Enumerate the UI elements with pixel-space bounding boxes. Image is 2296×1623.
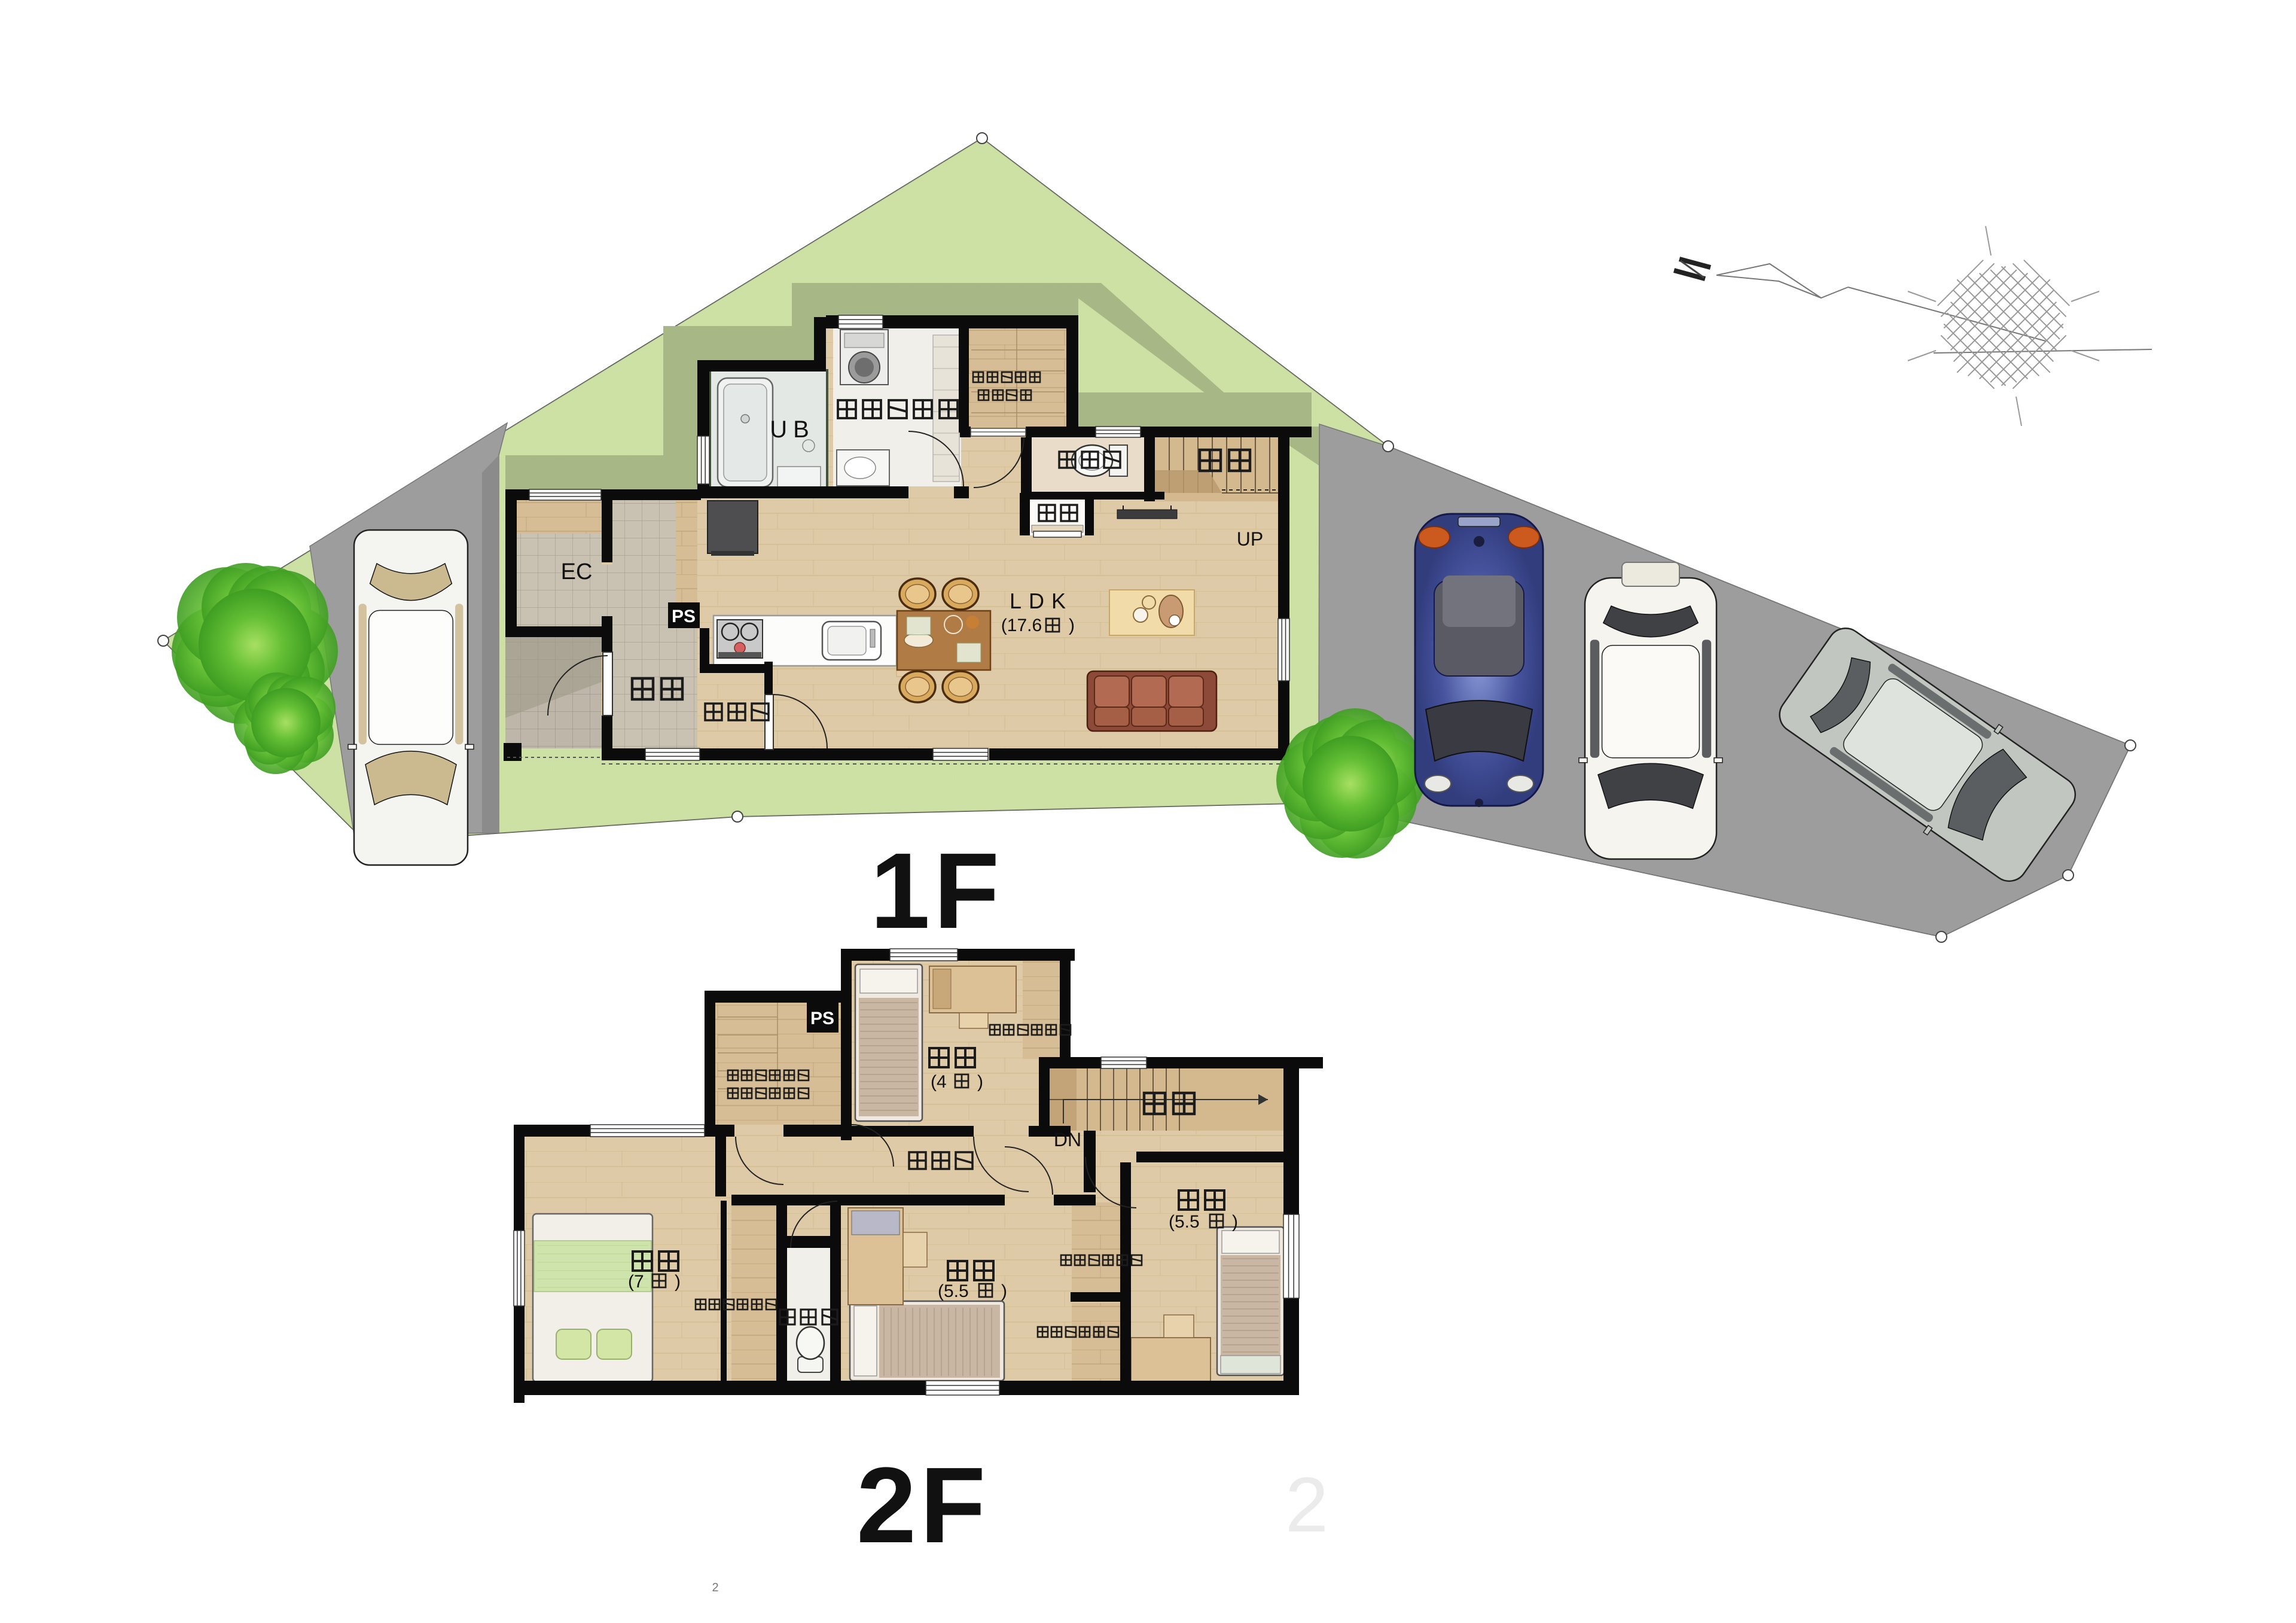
svg-text:UB: UB	[770, 416, 815, 443]
svg-text:(17.6: (17.6	[1001, 616, 1042, 635]
svg-text:2: 2	[712, 1581, 718, 1594]
svg-text:): )	[977, 1072, 983, 1092]
svg-text:): )	[1001, 1281, 1007, 1301]
svg-text:LDK: LDK	[1010, 589, 1073, 613]
svg-text:2F: 2F	[856, 1445, 989, 1566]
svg-text:): )	[1232, 1212, 1238, 1232]
svg-text:1F: 1F	[870, 831, 1003, 951]
svg-text:UP: UP	[1237, 528, 1263, 550]
svg-text:EC: EC	[561, 559, 593, 584]
svg-text:): )	[675, 1272, 681, 1292]
svg-text:): )	[1069, 616, 1075, 635]
svg-text:(4: (4	[931, 1072, 947, 1092]
svg-text:(7: (7	[628, 1272, 644, 1292]
svg-text:2: 2	[1285, 1461, 1328, 1548]
svg-text:PS: PS	[810, 1009, 834, 1028]
svg-text:DN: DN	[1054, 1129, 1081, 1150]
svg-text:PS: PS	[672, 607, 696, 626]
svg-text:(5.5: (5.5	[938, 1281, 969, 1301]
svg-text:(5.5: (5.5	[1169, 1212, 1200, 1232]
